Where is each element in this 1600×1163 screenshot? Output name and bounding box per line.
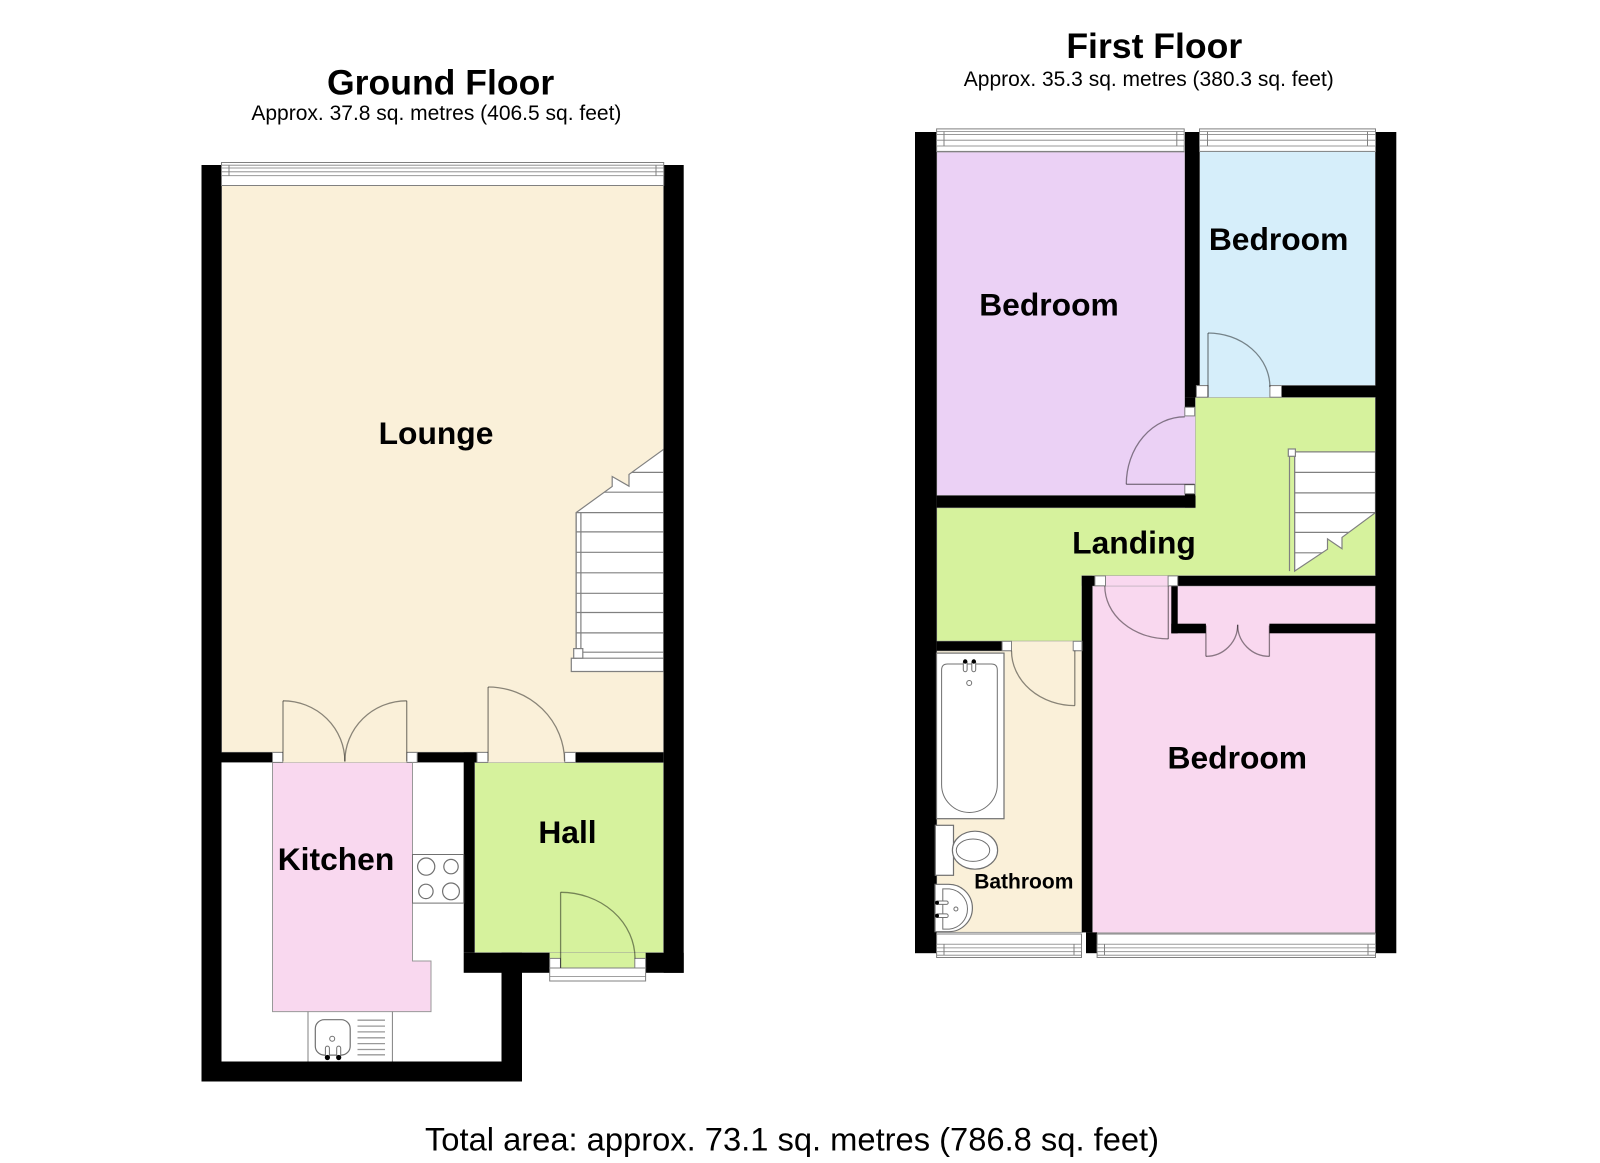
svg-text:Bedroom: Bedroom [1168, 739, 1308, 775]
svg-text:Bathroom: Bathroom [974, 871, 1073, 894]
svg-text:Lounge: Lounge [379, 415, 494, 451]
svg-text:Bedroom: Bedroom [1209, 221, 1349, 257]
svg-text:Bedroom: Bedroom [979, 287, 1119, 323]
svg-text:Landing: Landing [1072, 525, 1196, 561]
svg-text:Kitchen: Kitchen [278, 841, 395, 877]
svg-text:Approx. 37.8 sq. metres (406.5: Approx. 37.8 sq. metres (406.5 sq. feet) [251, 102, 621, 125]
svg-text:Ground Floor: Ground Floor [327, 63, 554, 103]
svg-text:Hall: Hall [538, 814, 596, 850]
svg-text:Approx. 35.3 sq. metres (380.3: Approx. 35.3 sq. metres (380.3 sq. feet) [964, 68, 1334, 91]
svg-text:First Floor: First Floor [1066, 26, 1242, 66]
svg-text:Total area: approx. 73.1 sq. m: Total area: approx. 73.1 sq. metres (786… [425, 1121, 1159, 1158]
